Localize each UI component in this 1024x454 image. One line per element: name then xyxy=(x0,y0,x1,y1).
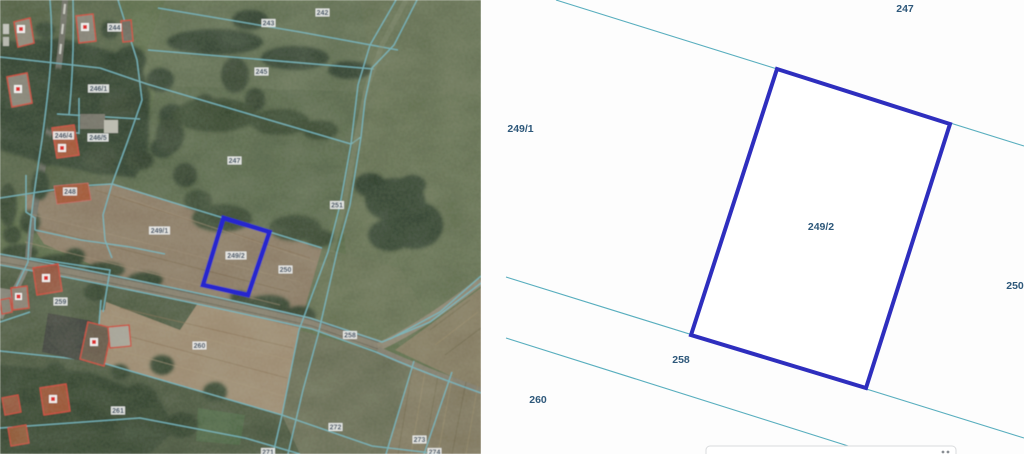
svg-text:273: 273 xyxy=(414,437,426,444)
svg-text:246/1: 246/1 xyxy=(90,86,108,93)
svg-text:245: 245 xyxy=(256,69,268,76)
svg-text:261: 261 xyxy=(112,408,124,415)
svg-text:271: 271 xyxy=(262,450,274,454)
svg-text:258: 258 xyxy=(672,354,690,366)
svg-text:250: 250 xyxy=(280,267,292,274)
svg-text:248: 248 xyxy=(64,189,76,196)
svg-text:258: 258 xyxy=(344,333,356,340)
svg-text:249/2: 249/2 xyxy=(227,253,245,260)
svg-text:260: 260 xyxy=(529,394,547,406)
svg-text:249/1: 249/1 xyxy=(507,123,533,135)
svg-text:244: 244 xyxy=(109,25,121,32)
svg-text:259: 259 xyxy=(55,299,67,306)
svg-text:274: 274 xyxy=(429,450,441,454)
svg-text:249/1: 249/1 xyxy=(151,228,169,235)
svg-text:260: 260 xyxy=(194,343,206,350)
svg-text:247: 247 xyxy=(896,3,914,15)
svg-text:250: 250 xyxy=(1006,280,1024,292)
svg-text:249/2: 249/2 xyxy=(808,221,834,233)
svg-text:251: 251 xyxy=(331,203,343,210)
svg-text:247: 247 xyxy=(229,158,241,165)
svg-text:272: 272 xyxy=(330,425,342,432)
svg-text:242: 242 xyxy=(317,10,329,17)
svg-text:246/5: 246/5 xyxy=(89,135,107,142)
svg-text:243: 243 xyxy=(263,21,275,28)
svg-text:246/4: 246/4 xyxy=(55,133,73,140)
